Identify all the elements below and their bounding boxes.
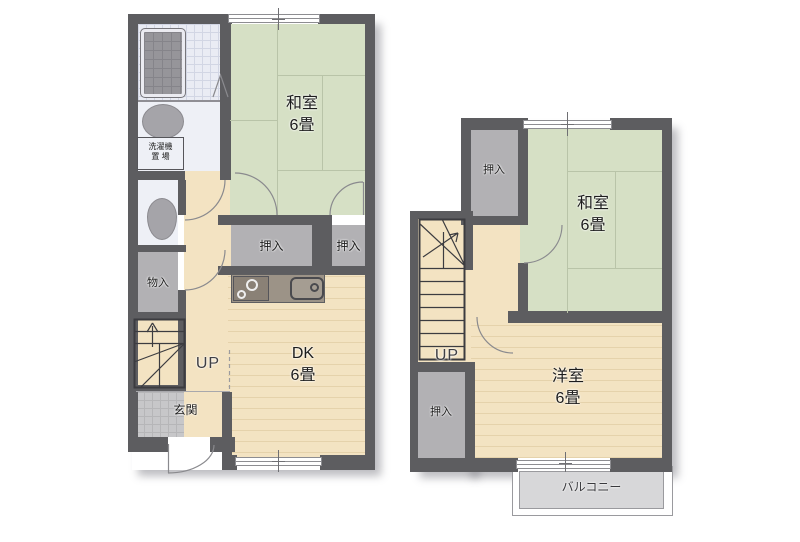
wall-segment xyxy=(138,171,185,180)
wall-segment xyxy=(218,215,332,225)
window xyxy=(516,460,611,469)
bathtub-icon xyxy=(141,29,185,97)
room-size: 6畳 xyxy=(253,365,353,387)
wall-segment xyxy=(178,180,186,215)
window xyxy=(523,120,612,129)
room-name: 洋室 xyxy=(519,366,617,388)
label-washitsu-2f: 和室 6畳 xyxy=(544,193,642,237)
stove-burner-icon xyxy=(237,290,246,299)
room-name: DK xyxy=(253,343,353,365)
label-dk-1f: DK 6畳 xyxy=(253,343,353,387)
label-western-2f: 洋室 6畳 xyxy=(519,366,617,410)
label-up-2f: UP xyxy=(424,347,470,365)
floorplan-canvas: 洗濯機 置 場 xyxy=(0,0,800,542)
wall-segment xyxy=(220,14,231,180)
label-balcony-2f: バルコニー xyxy=(519,480,664,494)
label-washitsu-1f: 和室 6畳 xyxy=(253,93,351,137)
laundry-label-line1: 洗濯機 xyxy=(138,142,183,152)
window xyxy=(235,457,322,466)
wall-segment xyxy=(128,437,168,452)
room-size: 6畳 xyxy=(519,388,617,410)
wall-segment xyxy=(131,312,186,320)
wall-segment xyxy=(518,263,528,318)
detail-lines xyxy=(0,0,800,542)
wall-segment xyxy=(508,311,672,323)
room-size: 6畳 xyxy=(253,115,351,137)
wall-segment xyxy=(410,458,518,472)
label-closet-bottom-2f: 押入 xyxy=(417,406,465,419)
window xyxy=(228,14,320,23)
laundry-label-line2: 置 場 xyxy=(138,152,183,162)
laundry-space-box: 洗濯機 置 場 xyxy=(137,137,184,170)
wall-segment xyxy=(320,455,375,470)
faucet-icon xyxy=(310,283,319,292)
stove-burner-icon xyxy=(246,279,258,291)
wall-segment xyxy=(138,245,186,252)
wall-segment xyxy=(410,211,473,219)
room-size: 6畳 xyxy=(544,215,642,237)
washbasin-icon xyxy=(142,104,184,139)
wall-segment xyxy=(465,362,475,472)
label-closet-top-2f: 押入 xyxy=(470,164,518,177)
room-name: 和室 xyxy=(544,193,642,215)
label-closet-right-1f: 押入 xyxy=(330,239,367,253)
label-storage-1f: 物入 xyxy=(136,277,180,290)
label-entrance-1f: 玄関 xyxy=(158,403,213,417)
wall-segment xyxy=(465,211,473,270)
wall-segment xyxy=(518,118,528,225)
sink-icon xyxy=(290,277,324,300)
label-closet-left-1f: 押入 xyxy=(231,239,312,253)
room-name: 和室 xyxy=(253,93,351,115)
wall-segment xyxy=(410,211,418,472)
wall-segment xyxy=(128,14,232,24)
wall-segment xyxy=(610,458,672,472)
wall-segment xyxy=(662,118,672,472)
wall-segment xyxy=(312,225,332,268)
label-up-1f: UP xyxy=(186,355,230,373)
wall-segment xyxy=(131,385,186,392)
wall-segment xyxy=(178,290,186,392)
